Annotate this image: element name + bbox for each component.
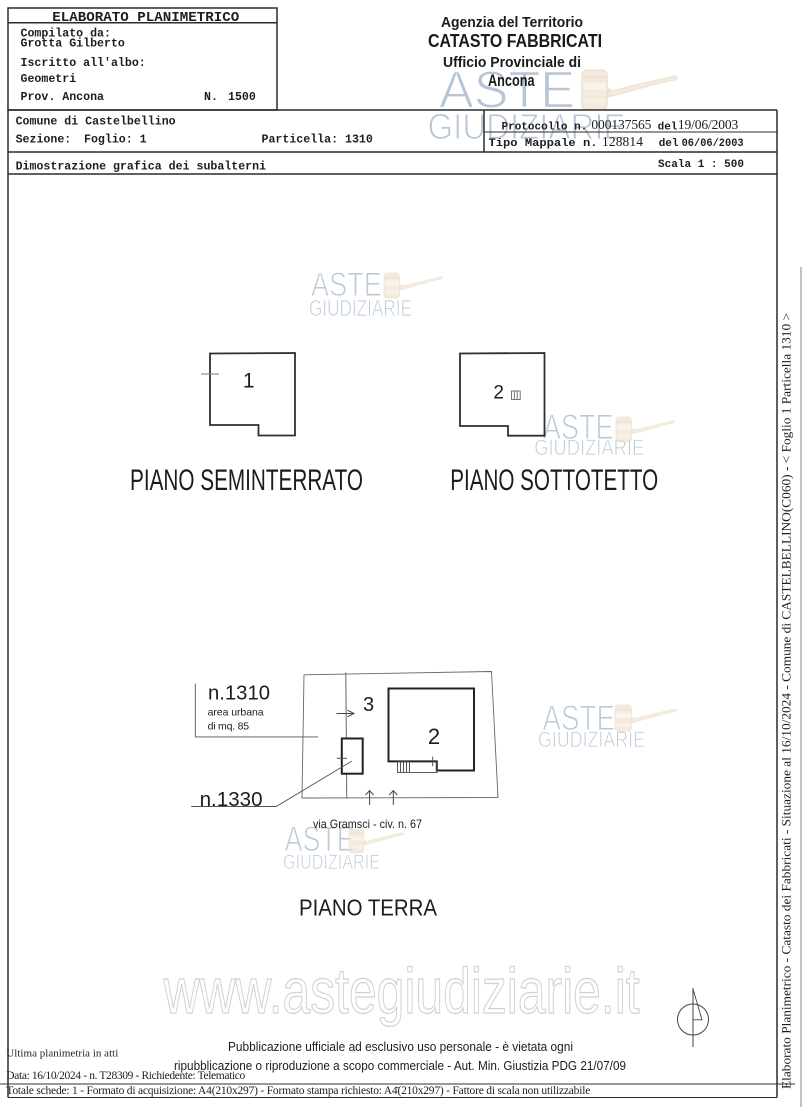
svg-text:Geometri: Geometri	[21, 73, 77, 86]
svg-text:di mq. 85: di mq. 85	[208, 720, 250, 732]
svg-text:Tipo Mappale n.: Tipo Mappale n.	[489, 138, 598, 150]
svg-text:Ultima planimetria in atti: Ultima planimetria in atti	[6, 1048, 118, 1060]
svg-text:Particella: 1310: Particella: 1310	[262, 134, 373, 147]
svg-text:PIANO SOTTOTETTO: PIANO SOTTOTETTO	[450, 464, 658, 497]
svg-text:del: del	[659, 138, 679, 150]
svg-text:Protocollo n.: Protocollo n.	[502, 121, 588, 133]
svg-text:Grotta Gilberto: Grotta Gilberto	[21, 38, 125, 51]
svg-text:Totale schede: 1 - Formato di: Totale schede: 1 - Formato di acquisizio…	[6, 1085, 590, 1097]
svg-text:128814: 128814	[602, 134, 643, 149]
svg-text:PIANO SEMINTERRATO: PIANO SEMINTERRATO	[130, 464, 363, 497]
svg-text:Prov. Ancona: Prov. Ancona	[21, 91, 105, 104]
svg-text:06/06/2003: 06/06/2003	[682, 138, 744, 150]
svg-text:19/06/2003: 19/06/2003	[678, 117, 739, 132]
svg-text:1: 1	[243, 369, 255, 392]
svg-text:Comune di Castelbellino: Comune di Castelbellino	[16, 116, 176, 129]
svg-text:000137565: 000137565	[591, 117, 651, 132]
svg-text:Scala 1 : 500: Scala 1 : 500	[658, 159, 744, 171]
svg-text:Sezione:: Sezione:	[16, 134, 72, 147]
svg-text:GIUDIZIARIE: GIUDIZIARIE	[309, 295, 412, 321]
svg-text:www.astegiudiziarie.it: www.astegiudiziarie.it	[163, 955, 640, 1027]
svg-text:Pubblicazione ufficiale ad esc: Pubblicazione ufficiale ad esclusivo uso…	[228, 1039, 573, 1054]
svg-text:ELABORATO PLANIMETRICO: ELABORATO PLANIMETRICO	[52, 11, 239, 26]
svg-text:Elaborato Planimetrico - Catas: Elaborato Planimetrico - Catasto dei Fab…	[779, 313, 794, 1089]
svg-text:N.: N.	[204, 91, 218, 104]
svg-text:n.1330: n.1330	[200, 788, 263, 811]
svg-text:Agenzia del Territorio: Agenzia del Territorio	[441, 14, 583, 31]
svg-text:Iscritto all'albo:: Iscritto all'albo:	[21, 57, 146, 70]
svg-text:Ancona: Ancona	[488, 71, 535, 90]
svg-text:1500: 1500	[228, 91, 256, 104]
svg-text:2: 2	[428, 724, 440, 749]
svg-text:Ufficio Provinciale di: Ufficio Provinciale di	[443, 54, 581, 71]
svg-text:via Gramsci - civ. n. 67: via Gramsci - civ. n. 67	[313, 817, 422, 831]
svg-text:Foglio: 1: Foglio: 1	[84, 134, 147, 147]
svg-text:2: 2	[493, 383, 504, 404]
svg-text:n.1310: n.1310	[208, 682, 270, 705]
svg-text:area urbana: area urbana	[208, 707, 264, 719]
svg-text:GIUDIZIARIE: GIUDIZIARIE	[283, 851, 380, 874]
svg-text:PIANO TERRA: PIANO TERRA	[299, 895, 438, 921]
svg-text:3: 3	[363, 694, 374, 716]
svg-text:ripubblicazione o riproduzione: ripubblicazione o riproduzione a scopo c…	[174, 1058, 626, 1073]
svg-text:CATASTO FABBRICATI: CATASTO FABBRICATI	[428, 30, 602, 51]
svg-text:Dimostrazione grafica dei suba: Dimostrazione grafica dei subalterni	[16, 161, 267, 174]
svg-text:del: del	[658, 121, 678, 133]
